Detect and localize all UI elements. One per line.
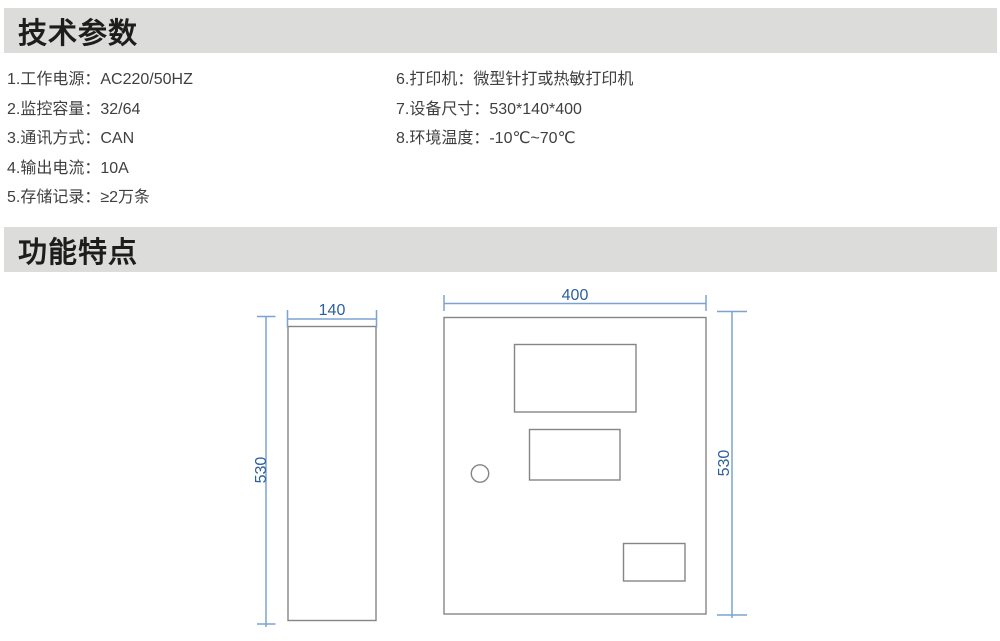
front-display-window [515, 345, 637, 413]
side-view: 140 530 [253, 302, 377, 627]
spec-item: 7.设备尺寸：530*140*400 [396, 95, 633, 125]
spec-sheet-page: 技术参数 1.工作电源：AC220/50HZ2.监控容量：32/643.通讯方式… [0, 0, 1000, 641]
dimension-drawing: 140 530 400 [0, 280, 1000, 641]
spec-item: 2.监控容量：32/64 [7, 95, 193, 125]
side-view-outline [288, 327, 376, 621]
front-height-label: 530 [716, 450, 733, 477]
spec-item: 1.工作电源：AC220/50HZ [7, 65, 193, 95]
side-height-label: 530 [253, 457, 270, 484]
spec-item: 6.打印机：微型针打或热敏打印机 [396, 65, 633, 95]
spec-item: 4.输出电流：10A [7, 154, 193, 184]
front-view: 400 530 [444, 287, 747, 618]
spec-item: 8.环境温度：-10℃~70℃ [396, 124, 633, 154]
section-header-tech-params: 技术参数 [4, 8, 997, 53]
front-panel-window [530, 430, 621, 481]
section-header-features: 功能特点 [4, 227, 997, 272]
spec-list-left: 1.工作电源：AC220/50HZ2.监控容量：32/643.通讯方式：CAN4… [7, 65, 193, 213]
spec-list-right: 6.打印机：微型针打或热敏打印机7.设备尺寸：530*140*4008.环境温度… [396, 65, 633, 154]
spec-item: 5.存储记录：≥2万条 [7, 183, 193, 213]
front-width-label: 400 [562, 287, 589, 304]
front-lock-hole [471, 465, 488, 482]
side-width-label: 140 [319, 302, 346, 319]
section-title-tech-params: 技术参数 [4, 9, 138, 52]
front-lower-window [624, 544, 686, 582]
section-title-features: 功能特点 [4, 228, 138, 271]
spec-item: 3.通讯方式：CAN [7, 124, 193, 154]
